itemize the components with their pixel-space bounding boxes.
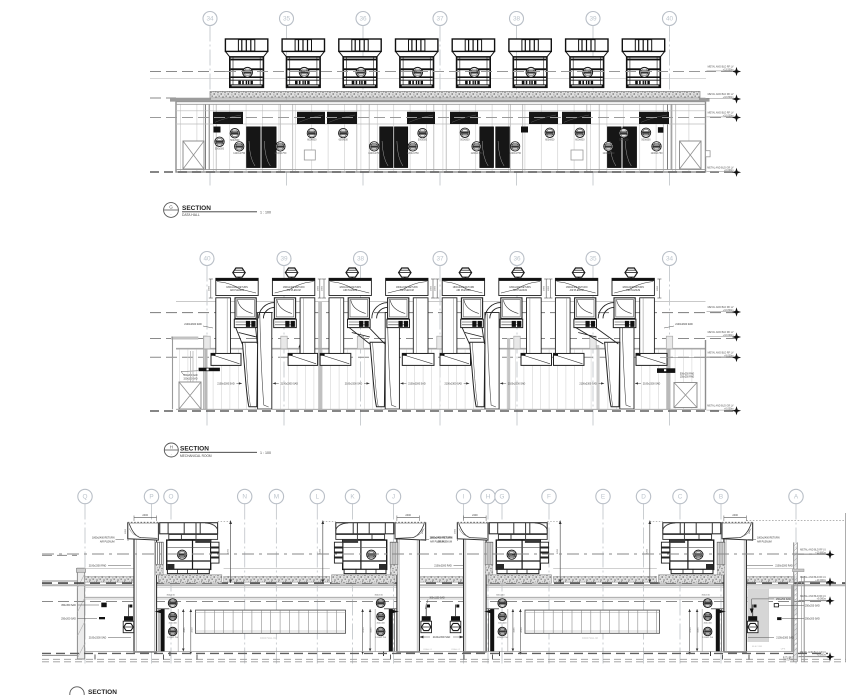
svg-text:1800: 1800 — [749, 528, 751, 534]
svg-text:J: J — [392, 494, 395, 501]
svg-text:1800x2400 RETURN: 1800x2400 RETURN — [757, 536, 780, 539]
svg-text:4710: 4710 — [690, 627, 692, 633]
svg-text:400x400: 400x400 — [376, 622, 385, 624]
svg-text:2400: 2400 — [472, 514, 478, 517]
svg-text:1800: 1800 — [317, 285, 319, 291]
svg-text:39: 39 — [589, 16, 597, 23]
svg-text:4265: 4265 — [371, 627, 373, 633]
svg-text:1800x2400 RETURN: 1800x2400 RETURN — [622, 287, 644, 289]
svg-text:-: - — [171, 452, 172, 456]
svg-text:O: O — [169, 494, 174, 501]
svg-text:250x250 SAD: 250x250 SAD — [805, 604, 820, 607]
svg-text:400x400: 400x400 — [498, 622, 507, 624]
svg-text:250x250 RAD: 250x250 RAD — [776, 598, 791, 601]
svg-text:1800x2400 RETURN: 1800x2400 RETURN — [453, 287, 475, 289]
svg-text:1200x1750: 1200x1750 — [702, 637, 714, 639]
svg-text:2100x2300 SAD: 2100x2300 SAD — [217, 382, 235, 385]
svg-text:2100x2300 SAD: 2100x2300 SAD — [345, 382, 363, 385]
svg-text:2100x2300 SAD: 2100x2300 SAD — [579, 382, 597, 385]
svg-text:1800: 1800 — [657, 285, 659, 291]
svg-text:2100x2300 SAD: 2100x2300 SAD — [281, 382, 299, 385]
svg-text:1800x2400 RETURN: 1800x2400 RETURN — [509, 287, 531, 289]
svg-text:AIR PLENUM: AIR PLENUM — [230, 289, 244, 292]
svg-text:SECTION: SECTION — [180, 446, 209, 453]
svg-text:4265: 4265 — [698, 627, 700, 633]
svg-text:300x150: 300x150 — [374, 595, 383, 597]
svg-text:34: 34 — [206, 16, 214, 23]
svg-text:Q: Q — [83, 494, 88, 501]
svg-text:1800x2400 RETURN: 1800x2400 RETURN — [283, 287, 305, 289]
svg-text:G: G — [169, 205, 173, 210]
svg-text:1200x1750: 1200x1750 — [509, 152, 522, 155]
svg-text:600x600: 600x600 — [575, 138, 585, 141]
svg-text:300x150: 300x150 — [496, 595, 505, 597]
svg-text:H: H — [486, 494, 491, 501]
svg-text:35: 35 — [283, 16, 291, 23]
svg-text:2100x2300 SAD: 2100x2300 SAD — [408, 382, 426, 385]
svg-text:450x450 SAD: 450x450 SAD — [61, 604, 76, 607]
svg-text:36: 36 — [359, 16, 367, 23]
svg-text:F: F — [547, 494, 551, 501]
svg-text:2100x2300 RAD: 2100x2300 RAD — [89, 565, 107, 568]
svg-text:1800: 1800 — [435, 285, 437, 291]
svg-text:ELEC RM: ELEC RM — [752, 646, 762, 648]
svg-text:2100x2300 SAD: 2100x2300 SAD — [444, 382, 462, 385]
svg-text:2100x2300 RAD: 2100x2300 RAD — [775, 565, 793, 568]
svg-text:1800x2400 RETURN: 1800x2400 RETURN — [430, 536, 453, 539]
svg-text:2100x2300 SAD: 2100x2300 SAD — [776, 637, 794, 640]
svg-text:1800x2400 RETURN: 1800x2400 RETURN — [566, 287, 588, 289]
svg-text:6292: 6292 — [647, 548, 649, 554]
svg-text:500x500: 500x500 — [641, 138, 651, 141]
svg-text:38: 38 — [357, 256, 365, 263]
svg-text:H: H — [170, 445, 173, 450]
svg-text:1800: 1800 — [125, 528, 127, 534]
svg-text:500x500: 500x500 — [460, 138, 470, 141]
svg-text:2100x2300 RAD: 2100x2300 RAD — [675, 323, 693, 326]
svg-text:1200x1750: 1200x1750 — [233, 152, 246, 155]
svg-text:2100x2300 SAD: 2100x2300 SAD — [643, 382, 661, 385]
svg-text:D: D — [641, 494, 646, 501]
svg-text:500x500: 500x500 — [619, 139, 629, 142]
svg-text:1200x1750: 1200x1750 — [497, 637, 509, 639]
svg-text:34: 34 — [666, 256, 674, 263]
svg-text:1200x1750: 1200x1750 — [274, 152, 287, 155]
svg-text:1800x2400 RETURN: 1800x2400 RETURN — [396, 287, 418, 289]
svg-text:1800x2400 RETURN: 1800x2400 RETURN — [92, 536, 115, 539]
svg-text:38: 38 — [513, 16, 521, 23]
svg-text:40: 40 — [203, 256, 211, 263]
svg-text:1200x1750: 1200x1750 — [407, 152, 420, 155]
svg-text:I: I — [463, 494, 465, 501]
svg-text:250x200 SAD: 250x200 SAD — [61, 617, 76, 620]
svg-text:250x200 SAD: 250x200 SAD — [805, 617, 820, 620]
svg-text:1200x1750: 1200x1750 — [471, 152, 484, 155]
svg-text:AIR PLENUM: AIR PLENUM — [513, 289, 527, 292]
svg-text:AIR PLENUM: AIR PLENUM — [287, 289, 301, 292]
svg-text:500x500: 500x500 — [215, 147, 225, 150]
svg-text:1800: 1800 — [422, 528, 424, 534]
svg-text:2100x2300 SAD: 2100x2300 SAD — [508, 382, 526, 385]
svg-text:1800: 1800 — [322, 285, 324, 291]
svg-text:AIR PLENUM: AIR PLENUM — [757, 540, 772, 543]
svg-text:UPS: UPS — [781, 649, 786, 651]
svg-text:300x150: 300x150 — [166, 595, 175, 597]
svg-text:6292: 6292 — [557, 548, 559, 554]
svg-text:2100x2300 SAD: 2100x2300 SAD — [433, 636, 451, 639]
svg-text:1200x1750: 1200x1750 — [167, 637, 179, 639]
svg-text:AIR PLENUM: AIR PLENUM — [343, 289, 357, 292]
svg-text:CRAH 01: CRAH 01 — [423, 648, 433, 651]
svg-text:AIR PLENUM: AIR PLENUM — [437, 540, 452, 543]
svg-text:1200x1750: 1200x1750 — [651, 152, 664, 155]
svg-text:AIR PLENUM: AIR PLENUM — [100, 540, 115, 543]
svg-text:P: P — [149, 494, 153, 501]
svg-text:L: L — [316, 494, 320, 501]
svg-text:4265: 4265 — [184, 627, 186, 633]
svg-text:DATA HALL: DATA HALL — [182, 213, 200, 217]
svg-text:1800: 1800 — [431, 285, 433, 291]
svg-text:1 : 100: 1 : 100 — [260, 210, 271, 214]
svg-text:4265: 4265 — [514, 627, 516, 633]
svg-text:6292: 6292 — [320, 548, 322, 554]
svg-text:K: K — [350, 494, 355, 501]
svg-text:300x1150 SAD: 300x1150 SAD — [429, 597, 445, 600]
svg-text:M: M — [274, 494, 279, 501]
svg-text:400x400: 400x400 — [703, 622, 712, 624]
svg-text:CRAH 02: CRAH 02 — [451, 648, 461, 651]
svg-text:36: 36 — [513, 256, 521, 263]
svg-text:600x600: 600x600 — [545, 138, 555, 141]
svg-text:DATA HALL 01: DATA HALL 01 — [260, 637, 276, 640]
svg-text:500x500: 500x500 — [418, 139, 428, 142]
svg-text:1800: 1800 — [454, 528, 456, 534]
svg-text:1200x1750: 1200x1750 — [602, 152, 615, 155]
svg-text:150x250 RAD: 150x250 RAD — [680, 376, 695, 379]
svg-text:6292: 6292 — [227, 548, 229, 554]
svg-text:300x150: 300x150 — [701, 595, 710, 597]
svg-text:1800: 1800 — [208, 285, 210, 291]
svg-text:400x400: 400x400 — [168, 622, 177, 624]
svg-text:AIR PLENUM: AIR PLENUM — [626, 289, 640, 292]
svg-text:2100x2300 SAD: 2100x2300 SAD — [89, 637, 107, 640]
svg-text:N: N — [242, 494, 247, 501]
svg-text:DATA HALL 02: DATA HALL 02 — [582, 637, 598, 640]
svg-text:G: G — [500, 494, 505, 501]
svg-text:37: 37 — [436, 16, 444, 23]
svg-text:1200x1750: 1200x1750 — [375, 637, 387, 639]
svg-text:C: C — [678, 494, 683, 501]
svg-text:1 : 100: 1 : 100 — [260, 451, 271, 455]
svg-text:4710: 4710 — [363, 627, 365, 633]
svg-text:40: 40 — [666, 16, 674, 23]
svg-text:4710: 4710 — [191, 627, 193, 633]
svg-text:2400: 2400 — [405, 514, 411, 517]
svg-text:SECTION: SECTION — [88, 689, 117, 695]
svg-text:39: 39 — [280, 256, 288, 263]
svg-text:4710: 4710 — [521, 627, 523, 633]
svg-text:600x600: 600x600 — [339, 139, 349, 142]
svg-text:37: 37 — [436, 256, 444, 263]
svg-text:AIR PLENUM: AIR PLENUM — [570, 289, 584, 292]
svg-text:A: A — [794, 494, 799, 501]
svg-text:-: - — [170, 212, 171, 216]
svg-text:AIR PLENUM: AIR PLENUM — [400, 289, 414, 292]
svg-text:AIR PLENUM: AIR PLENUM — [456, 289, 470, 292]
svg-text:1200x1750: 1200x1750 — [368, 152, 381, 155]
svg-text:1800: 1800 — [548, 285, 550, 291]
svg-text:2100x2300 RAD: 2100x2300 RAD — [434, 565, 452, 568]
svg-text:2100x2300 RAD: 2100x2300 RAD — [184, 323, 202, 326]
svg-text:B: B — [719, 494, 723, 501]
svg-text:1800: 1800 — [544, 285, 546, 291]
svg-text:2400: 2400 — [142, 514, 148, 517]
svg-text:MECHANICAL ROOM: MECHANICAL ROOM — [180, 454, 212, 458]
svg-text:1800x2400 RETURN: 1800x2400 RETURN — [339, 287, 361, 289]
svg-text:35: 35 — [589, 256, 597, 263]
svg-text:2400: 2400 — [732, 514, 738, 517]
svg-text:E: E — [601, 494, 605, 501]
svg-text:1800x2400 RETURN: 1800x2400 RETURN — [226, 287, 248, 289]
svg-text:500x250 RAD: 500x250 RAD — [680, 372, 695, 375]
svg-text:SECTION: SECTION — [182, 205, 211, 212]
svg-text:600x600: 600x600 — [307, 139, 317, 142]
